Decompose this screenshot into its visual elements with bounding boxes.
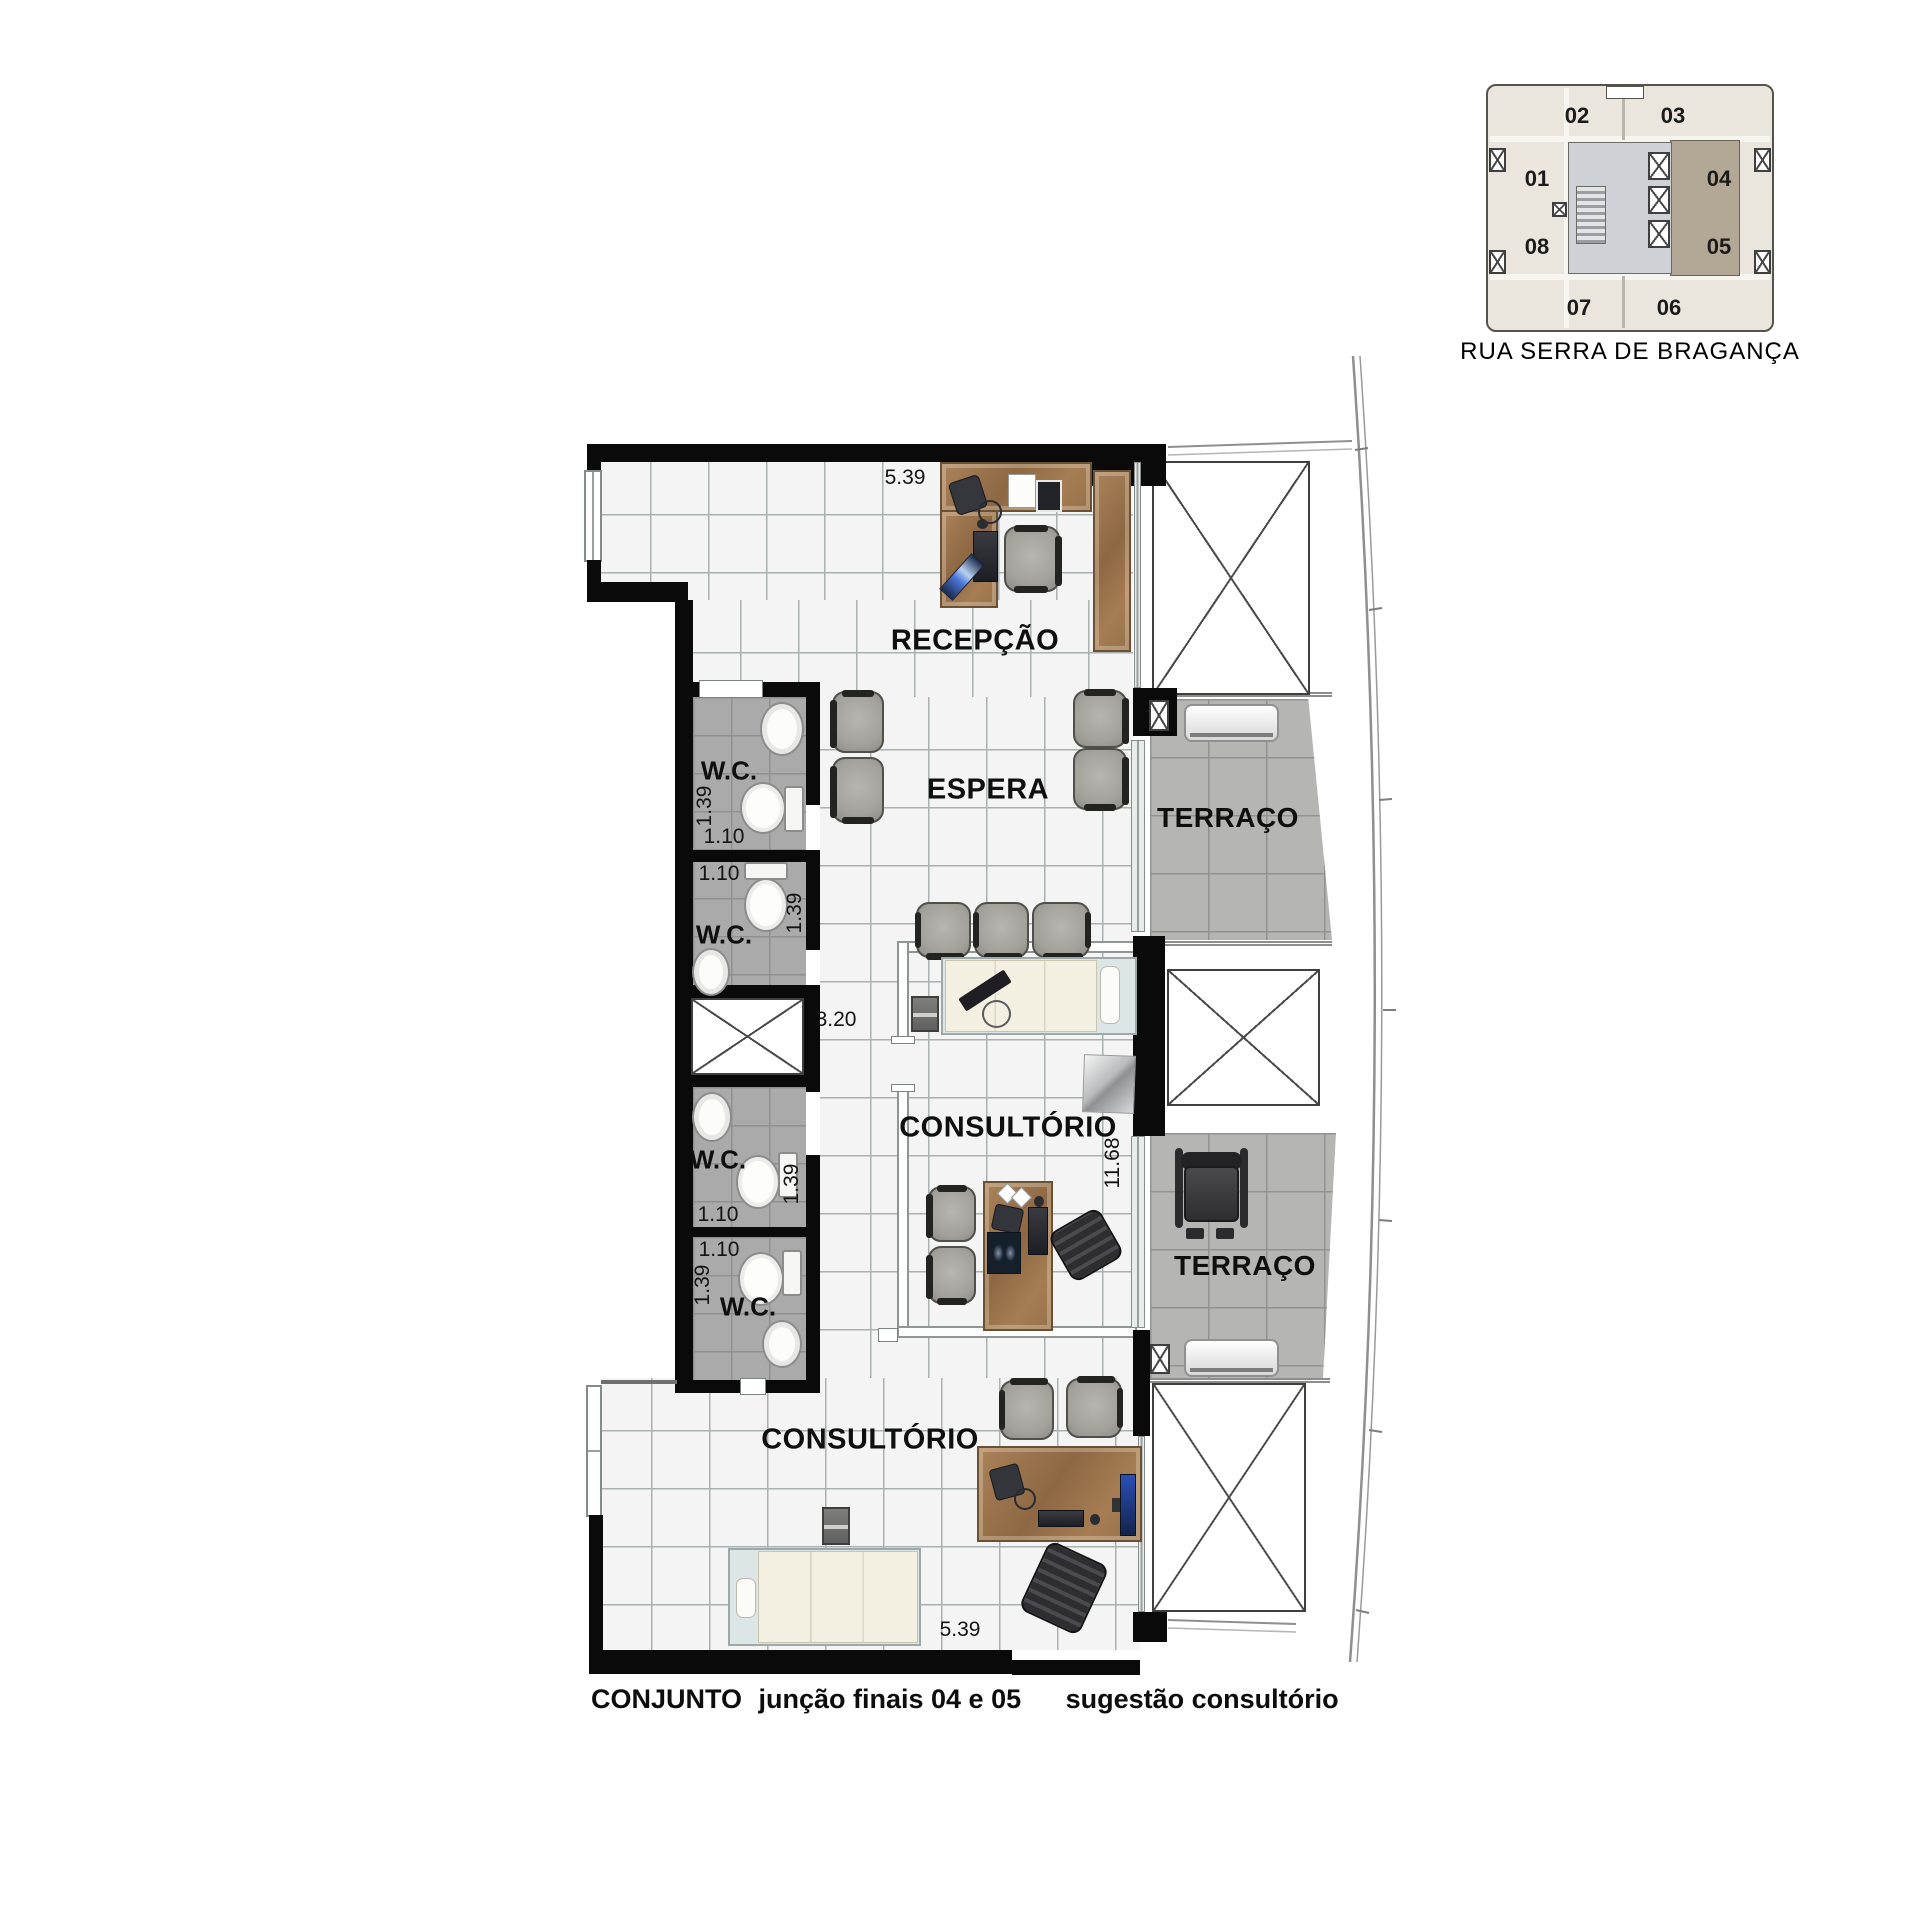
patient-chair-lower [1066, 1378, 1122, 1438]
reception-computer [973, 531, 998, 582]
espera-chair [1032, 902, 1090, 958]
room-label-wc3: W.C. [690, 1145, 746, 1176]
patient-chair-central [928, 1186, 976, 1242]
dim-wc3-fundo: 1.10 [698, 1203, 739, 1227]
shaft-void-top [1152, 461, 1310, 695]
wall-left-upper [587, 444, 601, 472]
espera-chair [916, 902, 971, 958]
glazing-recepcao-void [1134, 462, 1141, 688]
key-plan-unit-03: 03 [1661, 103, 1685, 129]
espera-chair [832, 691, 884, 753]
wall-wc-divider-1 [693, 850, 820, 862]
door-jamb [891, 1084, 915, 1092]
wc1-toilet-bowl [740, 782, 786, 834]
key-plan-elevator [1648, 220, 1670, 248]
caption: CONJUNTO junção finais 04 e 05 sugestão … [591, 1684, 1339, 1715]
key-plan-unit-01: 01 [1525, 166, 1549, 192]
key-plan-duct [1489, 250, 1506, 274]
shaft-void-bottom [1152, 1383, 1306, 1612]
dim-largura-topo: 5.39 [885, 466, 926, 490]
wheelchair-footrest [1216, 1228, 1234, 1239]
key-plan-entry-notch [1606, 86, 1644, 99]
key-plan-unit-05: 05 [1707, 234, 1731, 260]
key-plan-elevator [1648, 186, 1670, 214]
caption-juncao: junção finais 04 e 05 [758, 1684, 1021, 1714]
reception-papers [1008, 474, 1036, 508]
wall-step [587, 582, 688, 602]
sliding-door-terraco-sup [1131, 740, 1145, 932]
mirror-panel [1082, 1054, 1136, 1114]
key-plan-duct [1489, 148, 1506, 172]
entry-door [699, 680, 763, 698]
wc4-toilet-tank [782, 1250, 802, 1296]
desk-mouse-lower [1090, 1514, 1100, 1525]
room-label-terraco-inferior: TERRAÇO [1174, 1250, 1316, 1282]
wc2-sink [692, 948, 730, 996]
dim-wc1-frente: 1.39 [693, 786, 717, 827]
exam-bed-lower-pillow [736, 1578, 756, 1618]
wall-bottom [589, 1650, 1012, 1674]
exam-bed-central-pillow [1100, 966, 1120, 1024]
key-plan-gap [1622, 276, 1625, 328]
pier-terraco-inf [1133, 1330, 1150, 1436]
dim-wc4-fundo: 1.10 [699, 1238, 740, 1262]
sill-line-bottom-left [601, 1380, 677, 1384]
ac-condenser-inf [1184, 1339, 1279, 1377]
ac-condenser-sup [1184, 704, 1279, 742]
wall-left-lower [589, 1515, 603, 1664]
wall-top [587, 444, 1003, 462]
window-left-lower [586, 1385, 602, 1517]
key-plan-unit-08: 08 [1525, 234, 1549, 260]
wheelchair-footrest [1186, 1228, 1204, 1239]
dim-wc2-fundo: 1.10 [699, 862, 740, 886]
key-plan-elevator [1648, 152, 1670, 180]
dim-hall: 3.20 [816, 1008, 857, 1032]
bp-cord [982, 1000, 1011, 1028]
key-plan-duct [1754, 250, 1771, 274]
street-label: RUA SERRA DE BRAGANÇA [1460, 338, 1800, 366]
key-plan-stairs [1576, 186, 1606, 244]
room-label-wc2: W.C. [696, 920, 752, 951]
xray-film [987, 1232, 1021, 1274]
espera-chair [1073, 748, 1127, 810]
room-label-recepcao: RECEPÇÃO [891, 625, 1059, 658]
room-label-espera: ESPERA [927, 774, 1049, 807]
room-label-consultorio-central: CONSULTÓRIO [899, 1112, 1117, 1145]
partition-consultorio-left-upper [897, 941, 909, 1041]
caption-conjunto: CONJUNTO [591, 1684, 742, 1714]
pier-bottom-right [1133, 1612, 1167, 1642]
caption-sugestao: sugestão consultório [1066, 1684, 1339, 1714]
window-left-upper [584, 470, 602, 562]
wc1-toilet-tank [784, 786, 804, 832]
key-plan-unit-06: 06 [1657, 295, 1681, 321]
reception-counter-right [1093, 470, 1131, 652]
key-plan-unit-04: 04 [1707, 166, 1731, 192]
espera-chair [1073, 690, 1127, 748]
patient-chair-lower [1000, 1380, 1054, 1440]
wall-right-mid [1133, 936, 1165, 1136]
dim-profundidade: 11.68 [1101, 1138, 1125, 1189]
dim-wc2-frente: 1.39 [783, 893, 807, 934]
dim-wc3-frente: 1.39 [780, 1164, 804, 1205]
dim-wc4-frente: 1.39 [691, 1265, 715, 1306]
espera-chair [974, 902, 1029, 958]
wc1-sink [760, 702, 804, 756]
wall-bottom-right [1012, 1660, 1140, 1675]
door-jamb [878, 1328, 898, 1342]
reception-chair [1004, 526, 1060, 592]
wall-wc-right-2 [806, 852, 820, 950]
floor-plan-page: RECEPÇÃO ESPERA CONSULTÓRIO CONSULTÓRIO … [0, 0, 1920, 1920]
pier-duct-inf [1150, 1344, 1170, 1374]
key-plan: 02 03 01 04 08 05 07 06 [1486, 84, 1774, 332]
wall-wc-right-4 [806, 1155, 820, 1393]
exam-bed-lower [758, 1551, 918, 1643]
wc4-sink [762, 1320, 802, 1368]
sliding-door-terraco-inf [1131, 1136, 1145, 1328]
desk-mouse-central [1034, 1196, 1044, 1207]
cabinet-central [911, 996, 939, 1032]
key-plan-duct [1552, 202, 1567, 217]
reception-tablet [1036, 480, 1062, 512]
desk-keyboard-central [1028, 1207, 1048, 1255]
terrace-rail-mid [1160, 941, 1332, 946]
key-plan-duct [1754, 148, 1771, 172]
cabinet-lower [822, 1507, 850, 1545]
wc3-sink [692, 1092, 732, 1142]
room-label-wc4: W.C. [720, 1292, 776, 1323]
shaft-duct [691, 998, 804, 1075]
desk-keyboard-lower [1038, 1510, 1084, 1527]
pier-duct-sup [1149, 700, 1169, 731]
patient-chair-central [928, 1246, 976, 1304]
reception-mouse [977, 519, 988, 529]
key-plan-unit-02: 02 [1565, 103, 1589, 129]
key-plan-unit-07: 07 [1567, 295, 1591, 321]
shaft-void-middle [1167, 969, 1320, 1106]
monitor-lower [1120, 1474, 1136, 1536]
room-label-terraco-superior: TERRAÇO [1157, 802, 1299, 834]
espera-chair [832, 757, 884, 823]
phone-cord-lower [1014, 1488, 1036, 1510]
wc4-door [740, 1378, 766, 1395]
room-label-consultorio-inferior: CONSULTÓRIO [761, 1424, 979, 1457]
wheelchair-seat [1184, 1166, 1239, 1222]
wall-wc-divider-3 [693, 1227, 820, 1237]
dim-wc1-fundo: 1.10 [704, 825, 745, 849]
monitor-stand [1112, 1498, 1120, 1512]
dim-largura-base: 5.39 [940, 1618, 981, 1642]
door-jamb [891, 1036, 915, 1044]
wall-wc-right-1 [806, 697, 820, 805]
room-label-wc1: W.C. [701, 756, 757, 787]
